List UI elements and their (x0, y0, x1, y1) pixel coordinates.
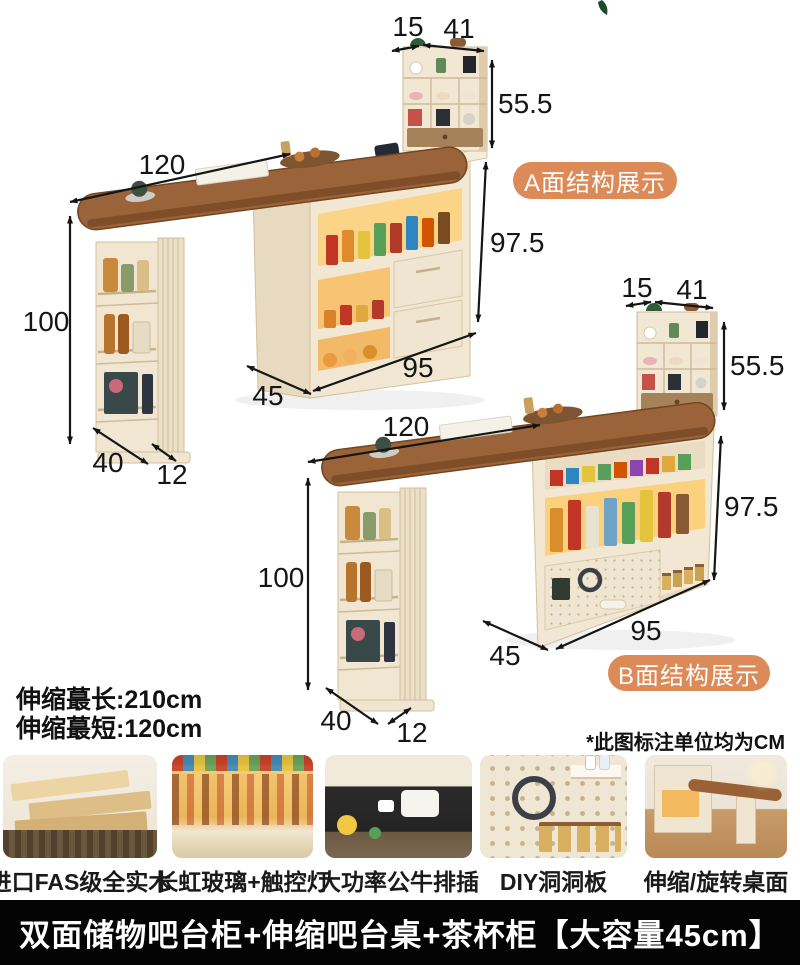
dim-a-table-height: 100 (23, 306, 70, 337)
bottle-decor (586, 756, 595, 769)
cup-hutch-a (403, 38, 487, 151)
dim-b-table-length: 120 (383, 411, 430, 442)
dim-a-hutch-width: 41 (443, 13, 474, 44)
headphones-decor (512, 776, 556, 820)
page: 15 41 55.5 120 100 40 12 45 95 97.5 (0, 0, 800, 965)
dim-b-table-height: 100 (258, 562, 305, 593)
dim-b-leg-width: 12 (396, 717, 427, 748)
product-title: 双面储物吧台柜+伸缩吧台桌+茶杯柜【大容量45cm】 (19, 910, 781, 955)
table-leg-decor (736, 796, 756, 843)
feature-caption: DIY洞洞板 (500, 863, 607, 897)
feature-thumb-glass-cabinet (172, 755, 313, 858)
drink-cans-decor (172, 755, 313, 771)
feature-caption: 伸缩/旋转桌面 (644, 863, 788, 897)
bark-decor (3, 830, 157, 858)
badge-b-label: B面结构展示 (618, 656, 760, 691)
leg-shelf-b (338, 488, 434, 711)
cup-hutch-b (637, 303, 717, 416)
plug-decor (378, 800, 394, 812)
dim-b-cabinet-depth: 45 (489, 640, 520, 671)
bottles-decor (172, 774, 313, 826)
toy-decor (337, 815, 357, 835)
dim-b-hutch-width: 41 (676, 274, 707, 305)
stretch-min-note: 伸缩蕞短:120cm (16, 715, 202, 744)
socket-decor (401, 790, 439, 817)
unit-note: *此图标注单位均为CM (553, 726, 785, 755)
dim-b-hutch-height: 55.5 (730, 350, 785, 381)
dim-b-cabinet-height: 97.5 (724, 491, 779, 522)
feature-caption: 长虹玻璃+触控灯 (155, 863, 329, 897)
badge-a-label: A面结构展示 (524, 163, 666, 198)
bottle-decor (600, 755, 609, 769)
dim-a-hutch-height: 55.5 (498, 88, 553, 119)
dim-a-cabinet-length: 95 (402, 352, 433, 383)
feature-caption: 大功率公牛排插 (318, 863, 479, 897)
diagram-a: 15 41 55.5 120 100 40 12 45 95 97.5 (23, 11, 553, 490)
badge-b-structure: B面结构展示 (608, 655, 770, 691)
arrow-a-97 (478, 162, 486, 322)
dim-a-hutch-side: 15 (392, 11, 423, 42)
arrow-b-97 (714, 436, 721, 580)
dim-a-leg-depth: 40 (92, 447, 123, 478)
feature-thumb-power-strip (325, 755, 472, 858)
feature-thumb-rotating-table (645, 755, 787, 858)
feature-row: 进口FAS级全实木 长虹玻璃+触控灯 大功率公牛排插 DIY洞洞板 (0, 755, 800, 895)
feature-caption: 进口FAS级全实木 (0, 863, 171, 897)
lamp-decor (754, 765, 770, 781)
badge-a-structure: A面结构展示 (513, 162, 677, 199)
feature-pegboard: DIY洞洞板 (480, 755, 627, 858)
dim-a-cabinet-height: 97.5 (490, 227, 545, 258)
glow-shelf-decor (662, 790, 699, 817)
shelf-decor (571, 765, 621, 777)
dim-b-cabinet-length: 95 (630, 615, 661, 646)
dim-b-leg-depth: 40 (320, 705, 351, 736)
feature-power-strip: 大功率公牛排插 (325, 755, 472, 858)
feature-thumb-pegboard (480, 755, 627, 858)
stretch-notes: 伸缩蕞长:210cm 伸缩蕞短:120cm (16, 686, 202, 744)
feature-solid-wood: 进口FAS级全实木 (3, 755, 157, 858)
feature-thumb-wood (3, 755, 157, 858)
toy-decor (369, 827, 381, 839)
feature-rotating-table: 伸缩/旋转桌面 (645, 755, 787, 858)
dim-a-leg-width: 12 (156, 459, 187, 490)
dimension-diagrams: 15 41 55.5 120 100 40 12 45 95 97.5 (0, 0, 800, 755)
leg-shelf-a (96, 238, 190, 463)
stretch-max-note: 伸缩蕞长:210cm (16, 686, 202, 715)
leg-b-items (345, 506, 395, 662)
product-title-bar: 双面储物吧台柜+伸缩吧台桌+茶杯柜【大容量45cm】 (0, 900, 800, 965)
feature-glass-light: 长虹玻璃+触控灯 (172, 755, 313, 858)
dim-b-hutch-side: 15 (621, 272, 652, 303)
leg-a-items (103, 258, 153, 414)
dim-a-table-length: 120 (139, 149, 186, 180)
jars-decor (539, 822, 621, 852)
dim-a-cabinet-depth: 45 (252, 380, 283, 411)
leaf-decor-icon (598, 0, 607, 15)
